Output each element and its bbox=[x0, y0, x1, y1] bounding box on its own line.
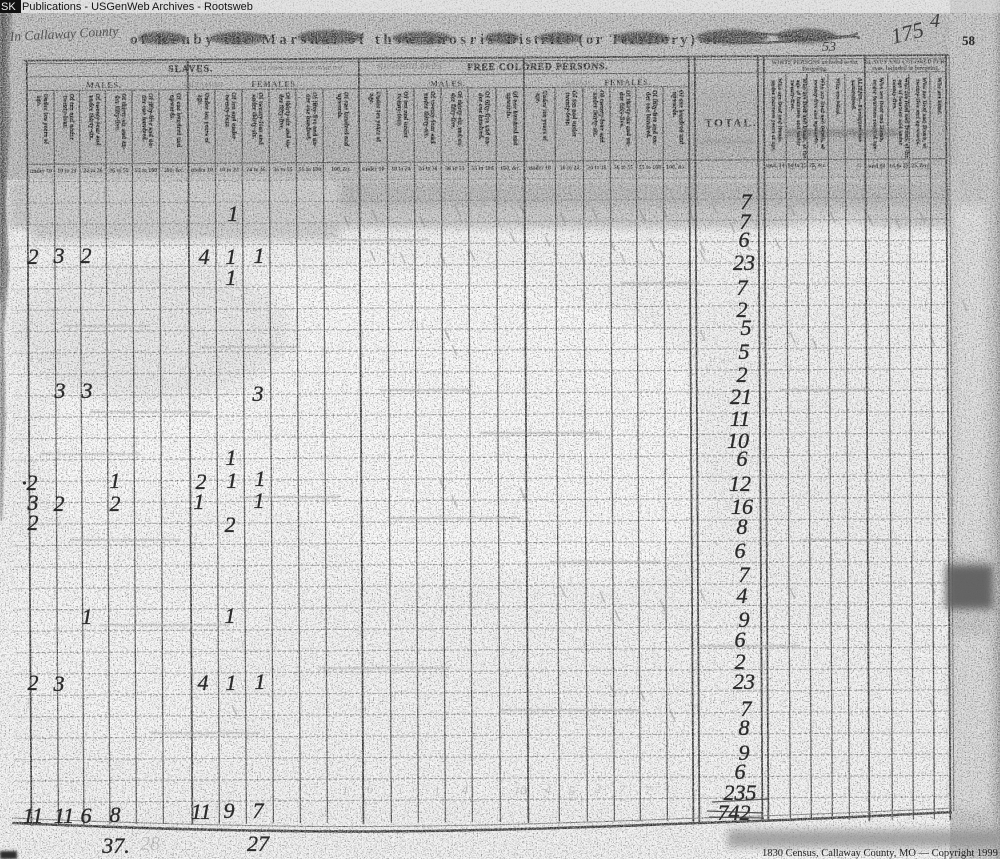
svg-text:4: 4 bbox=[462, 782, 469, 797]
svg-text:3: 3 bbox=[776, 162, 782, 173]
svg-text:4: 4 bbox=[198, 670, 209, 695]
svg-text:5: 5 bbox=[903, 162, 908, 173]
svg-text:58: 58 bbox=[962, 33, 976, 48]
svg-text:1: 1 bbox=[342, 783, 349, 798]
svg-text:1: 1 bbox=[254, 243, 265, 268]
svg-text:5: 5 bbox=[569, 783, 576, 798]
svg-text:5: 5 bbox=[739, 339, 750, 364]
svg-text:2: 2 bbox=[28, 510, 39, 535]
svg-text:37.: 37. bbox=[101, 833, 130, 858]
svg-text:6: 6 bbox=[81, 803, 92, 828]
svg-text:6: 6 bbox=[737, 446, 748, 471]
svg-text:2: 2 bbox=[595, 781, 602, 796]
svg-text:1: 1 bbox=[228, 201, 239, 226]
svg-text:4: 4 bbox=[879, 162, 884, 173]
svg-text:4: 4 bbox=[925, 162, 930, 173]
svg-text:1: 1 bbox=[82, 604, 93, 629]
svg-text:SK: SK bbox=[1, 1, 16, 13]
svg-text:4: 4 bbox=[930, 10, 940, 32]
svg-text:1: 1 bbox=[254, 488, 265, 513]
svg-text:6: 6 bbox=[735, 538, 746, 563]
svg-text:12: 12 bbox=[729, 471, 751, 496]
svg-text:1: 1 bbox=[226, 265, 237, 290]
svg-text:Publications - USGenWeb Archiv: Publications - USGenWeb Archives - Roots… bbox=[22, 1, 253, 13]
svg-text:1: 1 bbox=[255, 669, 266, 694]
svg-text:3: 3 bbox=[252, 381, 264, 406]
svg-text:1: 1 bbox=[227, 468, 238, 493]
svg-text:2: 2 bbox=[225, 512, 236, 537]
svg-text:5: 5 bbox=[741, 315, 752, 340]
svg-text:4: 4 bbox=[737, 583, 748, 608]
svg-text:9: 9 bbox=[224, 798, 235, 823]
svg-text:1: 1 bbox=[110, 468, 121, 493]
svg-text:7: 7 bbox=[619, 782, 626, 797]
svg-text:3: 3 bbox=[54, 378, 66, 403]
svg-text:4: 4 bbox=[545, 782, 552, 797]
svg-text:6: 6 bbox=[739, 227, 750, 252]
svg-text:4: 4 bbox=[895, 162, 900, 173]
svg-text:23: 23 bbox=[733, 669, 755, 694]
svg-text:2: 2 bbox=[110, 491, 121, 516]
svg-text:4: 4 bbox=[790, 162, 795, 173]
svg-text:2: 2 bbox=[28, 244, 39, 269]
svg-text:10: 10 bbox=[514, 783, 528, 798]
svg-text:8: 8 bbox=[110, 802, 121, 827]
svg-text:3: 3 bbox=[81, 378, 93, 403]
svg-text:1: 1 bbox=[225, 603, 236, 628]
svg-text:8: 8 bbox=[739, 715, 750, 740]
svg-text:28: 28 bbox=[140, 833, 160, 855]
svg-text:6: 6 bbox=[812, 162, 817, 173]
svg-text:8: 8 bbox=[737, 514, 748, 539]
svg-text:1830 Census, Callaway County,: 1830 Census, Callaway County, MO — Copyr… bbox=[762, 848, 1000, 859]
svg-text:11: 11 bbox=[191, 799, 211, 824]
svg-text:7: 7 bbox=[645, 783, 652, 798]
svg-text:1: 1 bbox=[226, 670, 237, 695]
svg-text:11: 11 bbox=[54, 803, 74, 828]
svg-text:2: 2 bbox=[54, 491, 65, 516]
svg-text:1: 1 bbox=[226, 445, 237, 470]
svg-text:4: 4 bbox=[199, 244, 210, 269]
svg-text:5: 5 bbox=[799, 162, 804, 173]
svg-text:11: 11 bbox=[23, 803, 43, 828]
svg-text:2: 2 bbox=[28, 670, 39, 695]
svg-text:1: 1 bbox=[194, 489, 205, 514]
svg-text:3: 3 bbox=[53, 671, 65, 696]
svg-text:7: 7 bbox=[253, 798, 265, 823]
svg-text:9: 9 bbox=[857, 162, 862, 173]
svg-text:27: 27 bbox=[247, 831, 270, 856]
svg-text:2: 2 bbox=[81, 243, 92, 268]
svg-text:1: 1 bbox=[665, 781, 672, 796]
svg-text:1: 1 bbox=[434, 784, 441, 799]
svg-text:6: 6 bbox=[367, 781, 374, 796]
svg-text:53: 53 bbox=[822, 40, 836, 55]
svg-text:3: 3 bbox=[53, 243, 65, 268]
